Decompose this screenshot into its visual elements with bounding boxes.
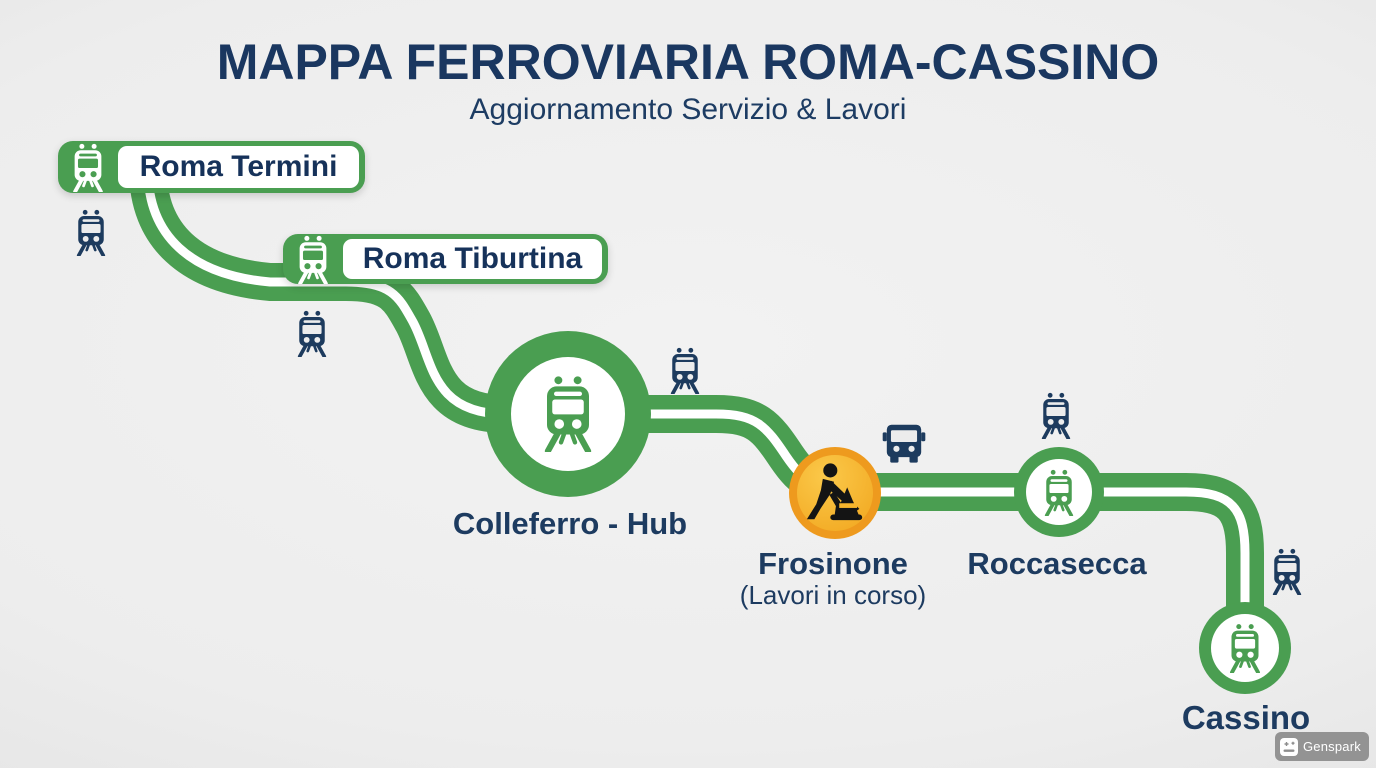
train-icon	[1043, 393, 1069, 438]
station-node-frosinone-works	[789, 447, 881, 539]
station-label: Roma Tiburtina	[343, 239, 602, 279]
station-badge-roma-tiburtina: Roma Tiburtina	[283, 234, 608, 284]
station-node-cassino	[1199, 602, 1291, 694]
watermark-label: Genspark	[1303, 739, 1361, 754]
train-badge-icon-box	[283, 235, 343, 284]
station-label: Roma Termini	[118, 146, 359, 188]
genspark-card-icon	[1280, 738, 1298, 756]
train-icon	[70, 143, 106, 192]
station-label-frosinone: Frosinone	[758, 546, 908, 582]
train-icon	[1274, 549, 1300, 594]
train-icon	[672, 348, 698, 393]
genspark-watermark-badge[interactable]: Genspark	[1275, 732, 1369, 761]
train-icon	[299, 311, 325, 356]
route-map-graphic	[0, 0, 1376, 768]
train-badge-icon-box	[58, 143, 118, 192]
train-icon	[78, 210, 104, 255]
station-badge-roma-termini: Roma Termini	[58, 141, 365, 193]
railway-map-canvas: MAPPA FERROVIARIA ROMA-CASSINO Aggiornam…	[0, 0, 1376, 768]
station-label-colleferro: Colleferro - Hub	[453, 506, 687, 542]
station-note-frosinone: (Lavori in corso)	[740, 580, 926, 611]
station-label-roccasecca: Roccasecca	[967, 546, 1146, 582]
bus-icon	[883, 425, 926, 463]
station-node-roccasecca	[1014, 447, 1104, 537]
train-icon	[295, 235, 331, 284]
station-node-colleferro-hub	[485, 331, 651, 497]
